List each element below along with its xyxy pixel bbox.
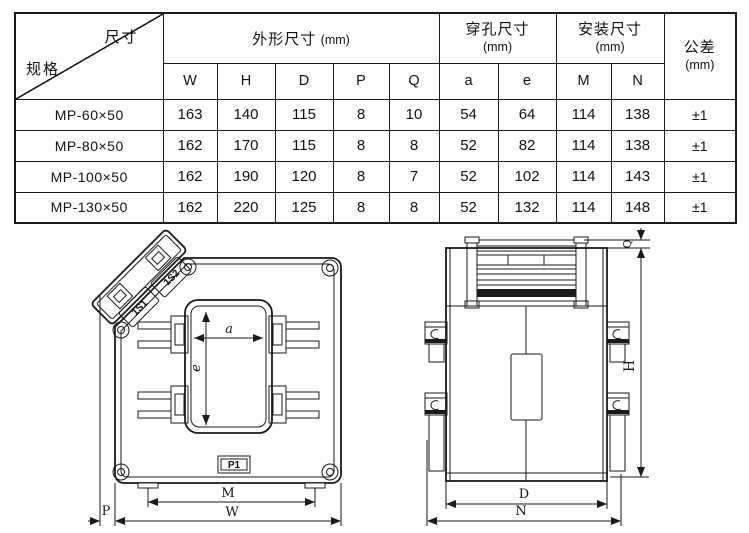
dim-label-H: H — [622, 360, 638, 372]
p1-mark: P1 — [218, 456, 250, 473]
dim-label-W: W — [225, 505, 239, 520]
col-header-P: P — [333, 63, 389, 99]
rail-clip — [607, 322, 629, 362]
col-header-Q: Q — [389, 63, 439, 99]
corner-screw — [322, 260, 338, 276]
mounting-foot — [305, 483, 325, 488]
spec-cell: MP-100×50 — [15, 161, 163, 192]
svg-text:1S2: 1S2 — [162, 268, 183, 289]
ct-body-inner-outline — [121, 264, 334, 477]
col-header-N: N — [611, 63, 664, 99]
table-row: MP-100×50 162 190 120 8 7 52 102 114 143… — [15, 161, 736, 192]
col-header-e: e — [498, 63, 556, 99]
dimension-table: 尺寸 规格 外形尺寸 (mm) 穿孔尺寸 (mm) 安装尺寸 (mm) 公差 — [14, 12, 737, 224]
clamp-terminal — [269, 316, 319, 353]
col-header-D: D — [275, 63, 333, 99]
clamp-terminal — [138, 316, 188, 353]
group-header-tolerance: 公差 (mm) — [664, 13, 736, 99]
mounting-foot — [138, 483, 158, 488]
terminal-tag-1S1: 1S1 — [118, 286, 159, 327]
corner-label-spec: 规格 — [26, 58, 60, 79]
spec-cell: MP-60×50 — [15, 99, 163, 130]
col-header-W: W — [163, 63, 217, 99]
ct-body-outline — [115, 258, 341, 483]
corner-header-cell: 尺寸 规格 — [15, 13, 163, 99]
group-header-outline: 外形尺寸 (mm) — [163, 13, 439, 63]
rail-clip — [607, 393, 629, 471]
corner-label-dimension: 尺寸 — [104, 26, 138, 47]
table-row: MP-60×50 163 140 115 8 10 54 64 114 138 … — [15, 99, 736, 130]
dim-label-D: D — [519, 487, 529, 502]
dim-label-N: N — [515, 504, 526, 519]
terminal-tag-1S2: 1S2 — [150, 256, 191, 297]
corner-screw — [322, 464, 338, 480]
col-header-H: H — [217, 63, 275, 99]
front-view-drawing: 1S2 1S1 a e — [88, 229, 341, 526]
group-header-hole: 穿孔尺寸 (mm) — [439, 13, 556, 63]
table-row: MP-130×50 162 220 125 8 8 52 132 114 148… — [15, 192, 736, 223]
clamp-terminal — [269, 386, 319, 423]
side-view-drawing: Q H D N — [425, 228, 650, 526]
dim-label-a: a — [225, 322, 233, 337]
terminal-screw — [107, 283, 132, 308]
nameplate — [511, 354, 542, 420]
svg-text:P1: P1 — [228, 460, 241, 471]
dim-label-P: P — [102, 504, 111, 519]
core-band — [477, 289, 576, 297]
spec-cell: MP-80×50 — [15, 130, 163, 161]
table-row: MP-80×50 162 170 115 8 8 52 82 114 138 ±… — [15, 130, 736, 161]
technical-drawings: 1S2 1S1 a e — [0, 226, 749, 533]
svg-text:1S1: 1S1 — [130, 298, 151, 319]
spec-cell: MP-130×50 — [15, 192, 163, 223]
rail-clip — [425, 322, 447, 362]
dim-label-Q: Q — [621, 239, 634, 248]
group-header-mounting: 安装尺寸 (mm) — [556, 13, 664, 63]
clamp-terminal — [138, 386, 188, 423]
dim-label-e: e — [189, 364, 204, 372]
dim-label-M: M — [221, 486, 234, 501]
col-header-a: a — [439, 63, 498, 99]
datasheet-page: 尺寸 规格 外形尺寸 (mm) 穿孔尺寸 (mm) 安装尺寸 (mm) 公差 — [0, 0, 749, 533]
rail-clip — [425, 393, 447, 471]
col-header-M: M — [556, 63, 611, 99]
